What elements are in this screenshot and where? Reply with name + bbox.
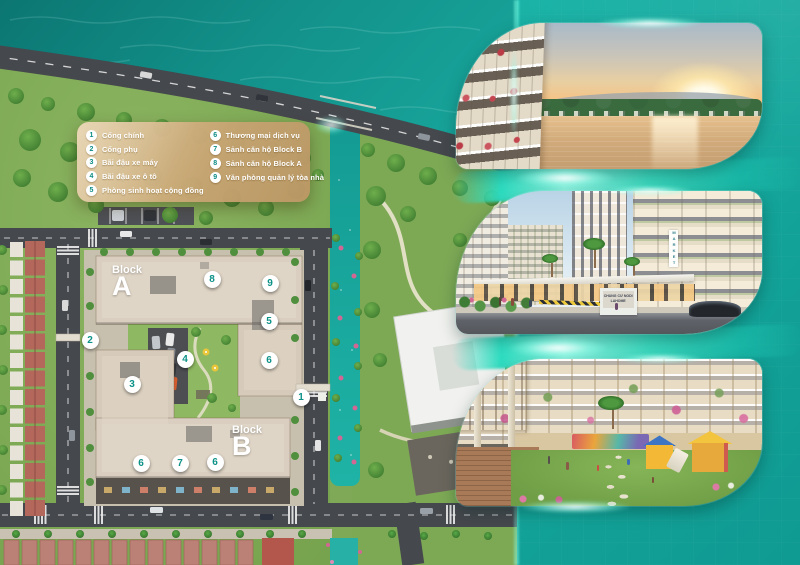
- legend-panel: 1Cổng chính 2Cổng phụ 3Bãi đậu xe máy 4B…: [77, 122, 310, 202]
- terrace-canopy: [456, 359, 526, 430]
- palm-tree: [598, 396, 624, 410]
- legend-label: Cổng phụ: [102, 145, 138, 154]
- stepping-stones: [585, 453, 652, 506]
- palm-tree: [542, 254, 558, 263]
- map-marker-4: 4: [177, 351, 194, 368]
- map-marker-3: 3: [124, 376, 141, 393]
- legend-label: Phòng sinh hoạt cộng đồng: [102, 186, 204, 195]
- legend-item: 6Thương mại dịch vụ: [210, 129, 324, 143]
- legend-item: 3Bãi đậu xe máy: [86, 156, 204, 170]
- play-tower-yellow-roof: [692, 431, 729, 472]
- legend-number-badge: 3: [86, 157, 97, 168]
- pedestrian: [529, 300, 532, 307]
- sun-reflection: [652, 116, 698, 169]
- block-b-label: Block B: [232, 426, 262, 458]
- street-parking: [98, 207, 194, 225]
- legend-number-badge: 4: [86, 171, 97, 182]
- map-marker-6-b: 6: [207, 454, 224, 471]
- legend-label: Văn phòng quản lý tòa nhà: [226, 173, 324, 182]
- map-marker-7: 7: [172, 455, 189, 472]
- legend-item: 1Cổng chính: [86, 129, 204, 143]
- legend-number-badge: 1: [86, 130, 97, 141]
- photo-courtyard-playground: [456, 359, 762, 506]
- legend-label: Sảnh căn hộ Block B: [226, 145, 303, 154]
- poster-canvas: 1Cổng chính 2Cổng phụ 3Bãi đậu xe máy 4B…: [0, 0, 800, 565]
- legend-label: Bãi đậu xe ô tô: [102, 172, 157, 181]
- balcony-flowers: [456, 23, 545, 169]
- map-marker-9: 9: [262, 275, 279, 292]
- legend-label: Sảnh căn hộ Block A: [226, 159, 302, 168]
- rainbow-mural: [572, 434, 649, 449]
- map-marker-6-a: 6: [133, 455, 150, 472]
- palm-trunk: [551, 263, 553, 277]
- parked-car: [689, 301, 741, 317]
- guard-booth: CHUNG CƯ NODI LAHOME: [600, 288, 637, 315]
- map-marker-5: 5: [261, 313, 278, 330]
- photo-entrance-gate: MARKET CHUNG CƯ NODI LAHOME: [456, 191, 762, 334]
- map-marker-8: 8: [204, 271, 221, 288]
- photo-river-sunset-view: [456, 23, 762, 169]
- river-surface: [529, 116, 762, 169]
- play-body-orange: [692, 443, 729, 473]
- gate-sign-line2: LAHOME: [611, 300, 626, 304]
- palm-tree: [624, 257, 640, 266]
- block-a-label: Block A: [112, 266, 142, 298]
- townhouse-row-west: [10, 241, 45, 516]
- market-sign: MARKET: [669, 230, 679, 267]
- legend-number-badge: 8: [210, 158, 221, 169]
- child: [627, 459, 630, 465]
- gate-sign-board: CHUNG CƯ NODI LAHOME: [603, 291, 634, 307]
- legend-label: Bãi đậu xe máy: [102, 158, 158, 167]
- map-marker-2: 2: [82, 332, 99, 349]
- legend-item: 8Sảnh căn hộ Block A: [210, 157, 324, 171]
- legend-label: Cổng chính: [102, 131, 144, 140]
- legend-item: 4Bãi đậu xe ô tô: [86, 170, 204, 184]
- legend-item: 9Văn phòng quản lý tòa nhà: [210, 170, 324, 184]
- legend-column-left: 1Cổng chính 2Cổng phụ 3Bãi đậu xe máy 4B…: [86, 129, 204, 197]
- legend-label: Thương mại dịch vụ: [226, 131, 300, 140]
- legend-number-badge: 6: [210, 130, 221, 141]
- legend-number-badge: 5: [86, 185, 97, 196]
- legend-number-badge: 2: [86, 144, 97, 155]
- legend-item: 5Phòng sinh hoạt cộng đồng: [86, 183, 204, 197]
- map-marker-6-right: 6: [261, 352, 278, 369]
- child: [597, 465, 600, 471]
- block-a-letter: A: [112, 275, 142, 298]
- adult: [548, 456, 551, 464]
- flower-bush: [706, 480, 756, 494]
- pedestrian: [511, 298, 514, 306]
- map-marker-1: 1: [293, 389, 310, 406]
- legend-number-badge: 7: [210, 144, 221, 155]
- block-b-letter: B: [232, 435, 262, 458]
- market-sign-text: MARKET: [672, 230, 676, 266]
- flower-bush: [511, 492, 571, 506]
- palm-trunk: [612, 409, 614, 429]
- legend-number-badge: 9: [210, 172, 221, 183]
- shops-strip: [96, 478, 290, 504]
- palm-trunk: [594, 248, 596, 268]
- pedestrian: [615, 303, 618, 310]
- adult: [566, 462, 569, 470]
- legend-column-right: 6Thương mại dịch vụ 7Sảnh căn hộ Block B…: [210, 129, 324, 197]
- legend-item: 7Sảnh căn hộ Block B: [210, 143, 324, 157]
- legend-item: 2Cổng phụ: [86, 143, 204, 157]
